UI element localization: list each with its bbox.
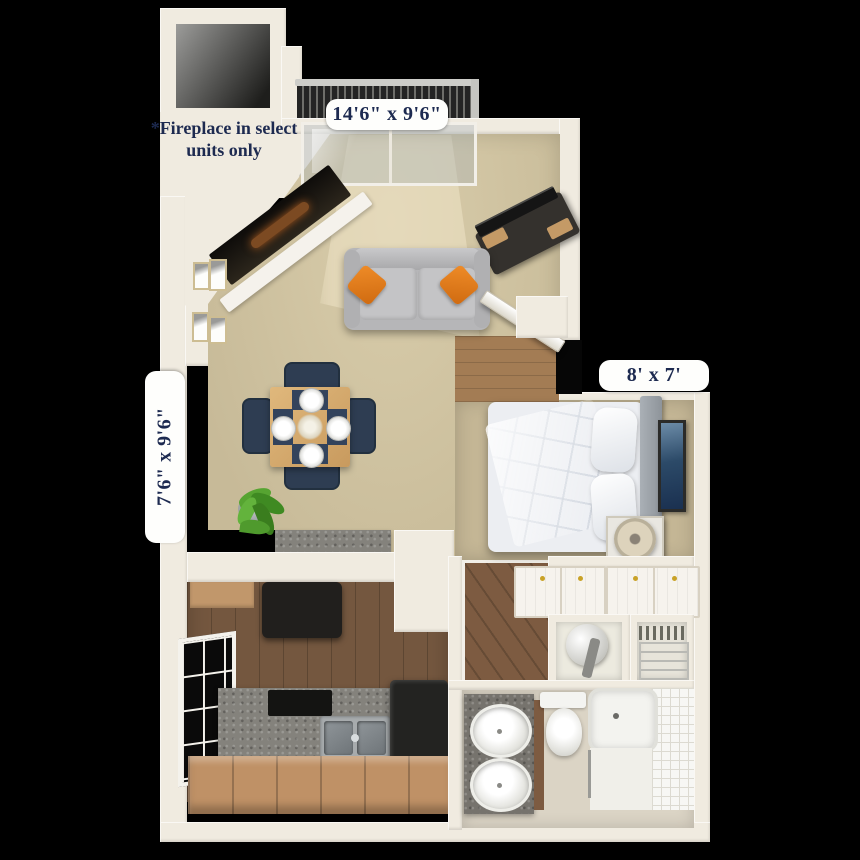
plate	[271, 416, 296, 441]
glass-reflection	[312, 129, 372, 173]
floor-plan: 14'6" x 9'6" 8' x 7' 7'6" x 9'6" *Firepl…	[0, 0, 860, 860]
plate	[326, 416, 351, 441]
door-seam	[560, 568, 562, 616]
breakfast-bar-counter	[275, 530, 391, 554]
chimney-opening	[176, 24, 270, 108]
picture-frame	[193, 262, 210, 290]
picture-frame	[192, 312, 209, 342]
tv-stand-drawer	[546, 217, 573, 239]
shower-floor	[590, 748, 652, 810]
dimension-label-bedroom: 8' x 7'	[599, 360, 709, 391]
cooktop	[268, 690, 332, 716]
closet-doors	[514, 566, 606, 618]
toilet	[546, 708, 582, 756]
artwork-canvas	[661, 423, 683, 509]
shower-rod	[588, 750, 591, 798]
sink-basin	[324, 721, 353, 755]
sofa	[344, 248, 490, 330]
sink-drain	[497, 729, 502, 734]
bed-pillow	[590, 407, 638, 474]
toilet-tank	[540, 692, 586, 708]
kitchen-cabinet	[190, 582, 254, 608]
balcony-railing-top	[295, 79, 479, 86]
bathroom-left-wall	[448, 556, 462, 830]
sink-basin	[357, 721, 386, 755]
lamp	[614, 518, 656, 560]
bathtub	[588, 688, 658, 752]
door-knob	[540, 576, 545, 581]
centerpiece	[297, 414, 323, 440]
bedroom-artwork	[658, 420, 686, 512]
range	[262, 582, 342, 638]
tub-drain	[613, 713, 619, 719]
dimension-text: 14'6" x 9'6"	[332, 103, 441, 126]
hanging-items	[639, 626, 685, 640]
entry-closet-shelf	[516, 296, 568, 338]
picture-frame	[209, 316, 227, 344]
kitchen-half-wall-return	[394, 530, 454, 632]
bathroom-sink	[470, 758, 532, 812]
kitchen-sink	[320, 716, 390, 760]
dimension-text: 7'6" x 9'6"	[154, 408, 177, 507]
door-divider	[389, 125, 392, 183]
dimension-text: 8' x 7'	[627, 364, 682, 387]
picture-frame	[209, 259, 227, 291]
shower-tile-wall	[652, 688, 694, 810]
dimension-label-living-room: 14'6" x 9'6"	[326, 99, 448, 130]
fireplace-note: *Fireplace in select units only	[146, 118, 302, 162]
door-knob	[578, 576, 583, 581]
door-knob	[633, 576, 638, 581]
vanity-side-panel	[534, 700, 544, 810]
kitchen-base-cabinets	[188, 756, 452, 814]
dining-table	[270, 387, 350, 467]
faucet	[351, 734, 359, 742]
dimension-label-dining-area: 7'6" x 9'6"	[145, 371, 185, 543]
door-seam	[653, 568, 655, 616]
bathroom-sink	[470, 704, 532, 758]
door-knob	[672, 576, 677, 581]
sink-drain	[497, 783, 502, 788]
closet-doors	[606, 566, 700, 618]
wire-shelving	[639, 642, 689, 682]
plate	[299, 443, 324, 468]
entry-floor	[455, 336, 559, 402]
plate	[299, 388, 324, 413]
